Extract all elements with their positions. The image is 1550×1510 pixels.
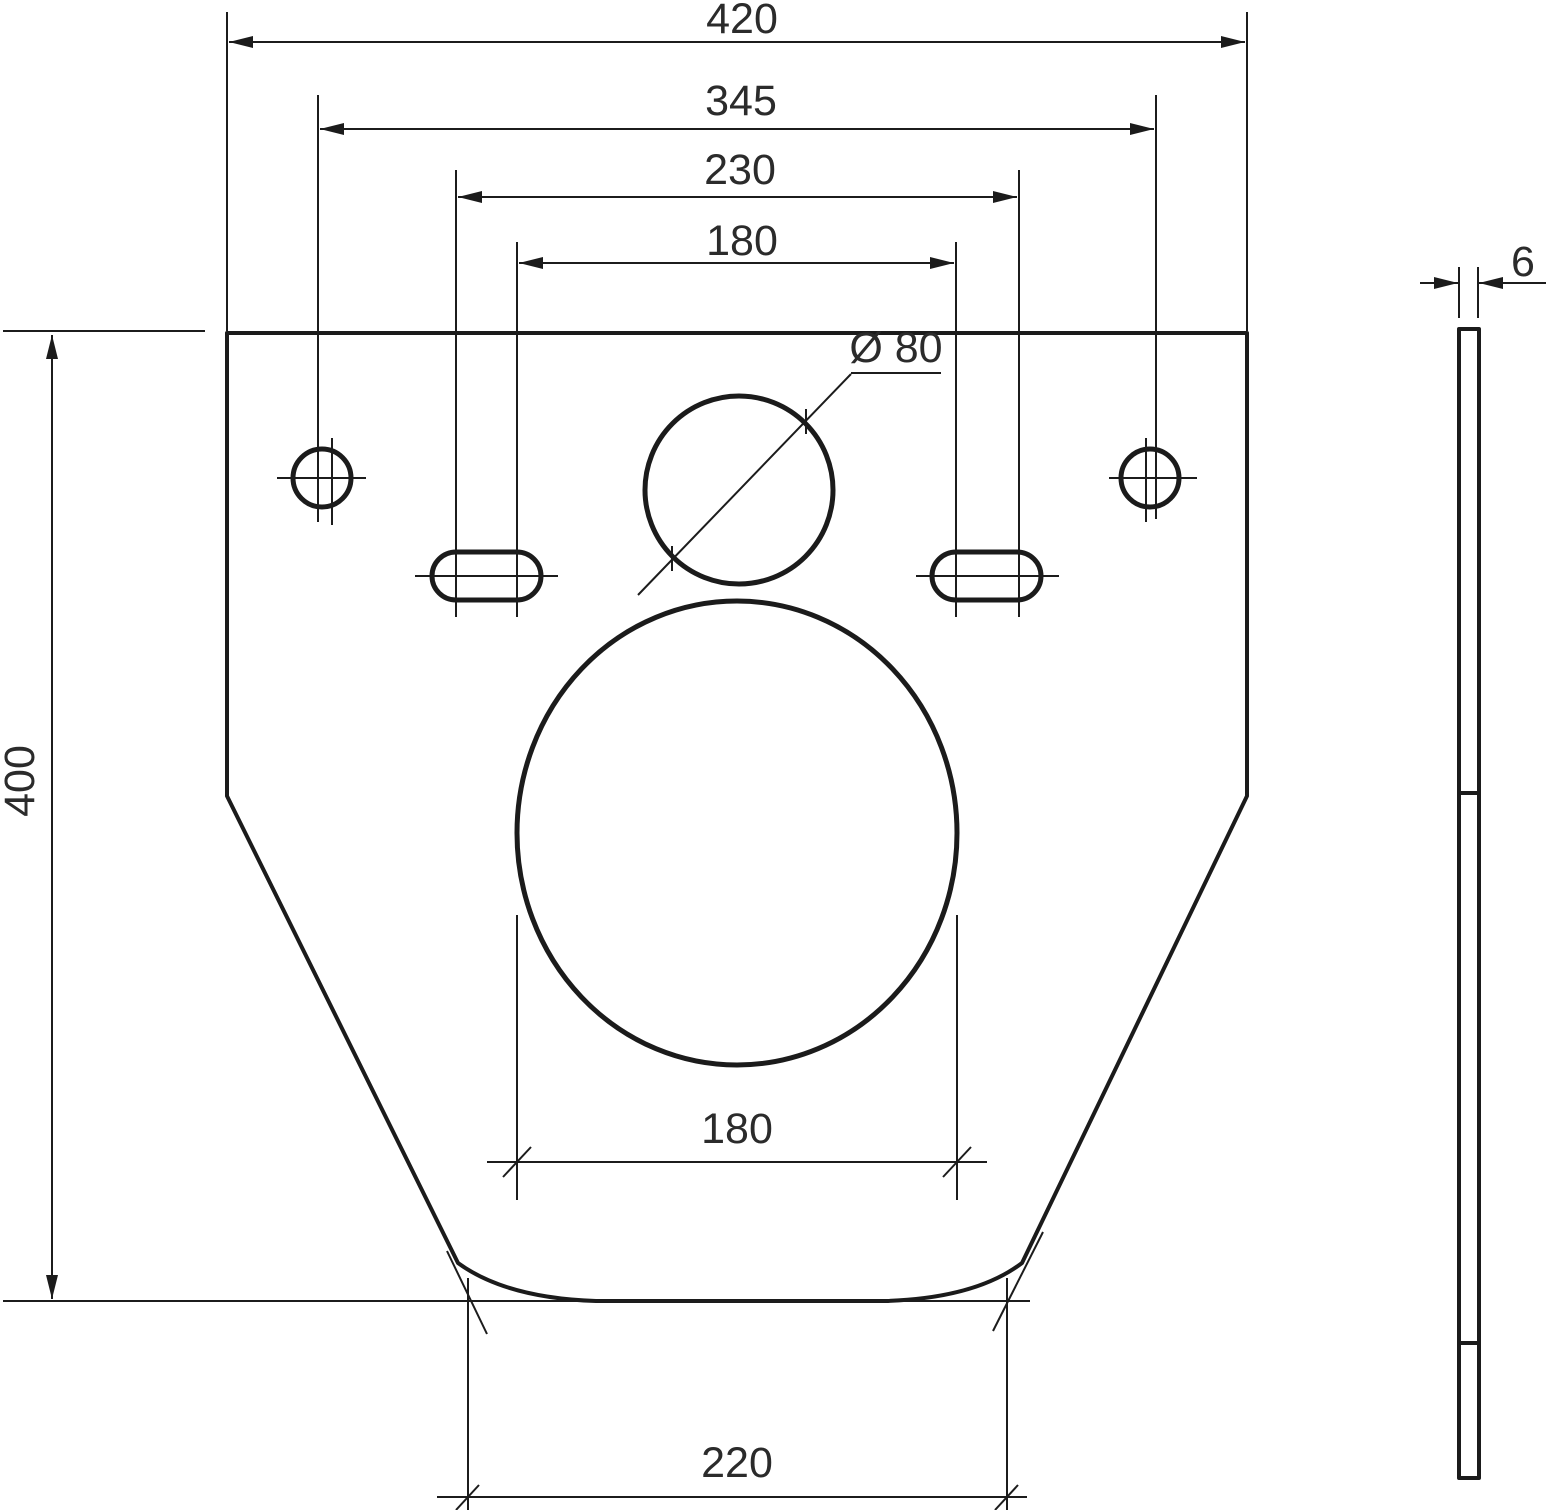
arrowhead-left (320, 123, 344, 135)
dim-hole-centers: 345 (318, 77, 1156, 522)
arrowhead-right (1221, 36, 1245, 48)
dim-value: 420 (706, 0, 778, 43)
arrowhead-left (229, 36, 253, 48)
arrowhead-left (519, 257, 543, 269)
side-profile (1459, 329, 1479, 1478)
drawing-canvas: 420 345 230 180 400 (0, 0, 1550, 1510)
dimension-drawing: 420 345 230 180 400 (0, 0, 1550, 1510)
arrowhead-bottom (46, 1275, 58, 1299)
dim-value: 6 (1511, 238, 1535, 286)
plate-outline (227, 333, 1247, 1301)
dim-value: 180 (701, 1105, 773, 1153)
dim-value: Ø 80 (849, 324, 942, 372)
dim-overall-height: 400 (0, 331, 1030, 1301)
leader-diagonal (638, 374, 851, 595)
dim-value: 345 (705, 77, 777, 125)
arrowhead-left (1434, 277, 1458, 289)
slant-extension-right (993, 1232, 1043, 1331)
dim-value: 230 (704, 146, 776, 194)
dim-pipe-hole-diameter: Ø 80 (638, 324, 943, 595)
arrowhead-right (930, 257, 954, 269)
arrowhead-top (46, 335, 58, 359)
dim-thickness: 6 (1420, 238, 1546, 318)
dim-value: 180 (706, 217, 778, 265)
dim-value: 400 (0, 745, 44, 817)
dim-slot-centers-inner: 180 (517, 217, 956, 617)
arrowhead-right (993, 191, 1017, 203)
front-view (227, 333, 1247, 1334)
arrowhead-right (1479, 277, 1503, 289)
dim-opening-width: 180 (487, 915, 987, 1200)
dim-base-width: 220 (437, 1278, 1027, 1510)
arrowhead-left (458, 191, 482, 203)
side-view (1457, 329, 1481, 1478)
arrowhead-right (1130, 123, 1154, 135)
large-opening-ellipse (517, 601, 957, 1065)
dim-value: 220 (701, 1439, 773, 1487)
